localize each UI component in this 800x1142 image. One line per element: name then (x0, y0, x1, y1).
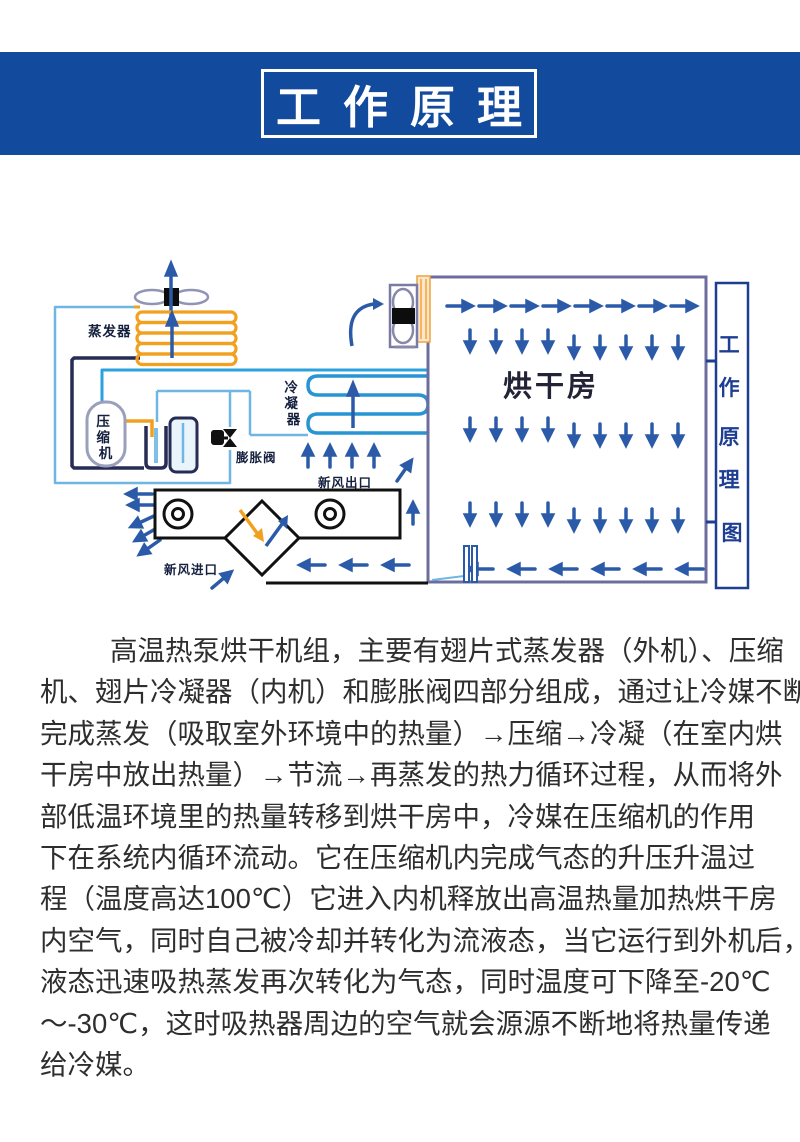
fan-blade-icon (174, 290, 208, 304)
paragraph-line: 高温热泵烘干机组，主要有翅片式蒸发器（外机）、压缩 (40, 630, 785, 671)
paragraph-line: 内空气，同时自己被冷却并转化为流液态，当它运行到外机后， (40, 920, 785, 961)
paragraph-line: ～-30℃，这时吸热器周边的空气就会源源不断地将热量传递 (40, 1003, 785, 1044)
expansion-valve-label: 膨胀阀 (235, 450, 277, 465)
title-box: 工作原理 (261, 69, 537, 138)
condenser-coil (308, 376, 428, 433)
evaporator-airflow-arrow (168, 314, 177, 358)
orange-pipe (124, 421, 152, 437)
evaporator-coil (137, 312, 236, 365)
paragraph-line: 给冷媒。 (40, 1044, 785, 1085)
fan-hub-icon (392, 308, 415, 324)
page: 工作原理 (0, 0, 800, 1142)
fan-blade-icon (135, 290, 169, 304)
fresh-air-inlet-label: 新风进口 (164, 562, 218, 577)
paragraph-line: 干房中放出热量）→节流→再蒸发的热力循环过程，从而将外 (40, 754, 785, 795)
indoor-coil (417, 276, 430, 342)
paragraph-line: 部低温环境里的热量转移到烘干房中，冷媒在压缩机的作用 (40, 796, 785, 837)
principle-diagram: 蒸发器 压 缩 机 膨胀阀 冷 凝 器 烘干房 (40, 258, 760, 598)
description-paragraph: 高温热泵烘干机组，主要有翅片式蒸发器（外机）、压缩 机、翅片冷凝器（内机）和膨胀… (40, 630, 785, 1085)
evaporator-label: 蒸发器 (88, 323, 132, 339)
curved-airflow-arrow (351, 298, 384, 346)
paragraph-line: 下在系统内循环流动。它在压缩机内完成气态的升压升温过 (40, 837, 785, 878)
condenser-airflow-arrow (349, 384, 358, 428)
paragraph-line: 机、翅片冷凝器（内机）和膨胀阀四部分组成，通过让冷媒不断 (40, 671, 785, 712)
paragraph-line: 液态迅速吸热蒸发再次转化为气态，同时温度可下降至-20℃ (40, 961, 785, 1002)
indoor-fan-unit (390, 276, 430, 347)
drying-room-label: 烘干房 (503, 370, 599, 403)
fresh-air-outlet-label: 新风出口 (318, 475, 372, 490)
compressor-label: 压 缩 机 (96, 414, 115, 461)
paragraph-line: 完成蒸发（吸取室外环境中的热量）→压缩→冷凝（在室内烘 (40, 713, 785, 754)
condenser-label: 冷 凝 器 (284, 379, 303, 427)
paragraph-line: 程（温度高达100℃）它进入内机释放出高温热量加热烘干房 (40, 878, 785, 919)
page-title: 工作原理 (254, 71, 544, 136)
header-band: 工作原理 (0, 52, 800, 155)
expansion-valve (211, 429, 237, 447)
